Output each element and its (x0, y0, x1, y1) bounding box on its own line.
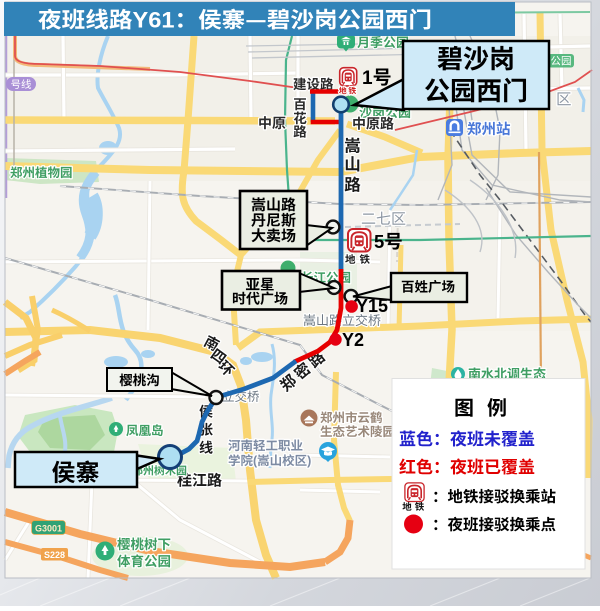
svg-text:时代广场: 时代广场 (232, 289, 288, 309)
svg-text:生态艺术陵园: 生态艺术陵园 (320, 421, 395, 440)
svg-text:嵩山路: 嵩山路 (341, 136, 365, 195)
svg-text:百姓广场: 百姓广场 (401, 276, 455, 296)
svg-text:S228: S228 (44, 548, 65, 561)
svg-text:：夜班接驳换乘点: ：夜班接驳换乘点 (432, 513, 556, 535)
svg-text:侯寨: 侯寨 (52, 453, 100, 488)
svg-text:Y2: Y2 (342, 326, 364, 352)
svg-text:5号: 5号 (374, 228, 403, 254)
svg-text:1号: 1号 (362, 63, 392, 90)
svg-text:凤凰岛: 凤凰岛 (126, 420, 164, 439)
svg-text:地铁: 地铁 (402, 499, 427, 513)
svg-text:体育公园: 体育公园 (117, 550, 171, 570)
svg-text:地铁: 地铁 (339, 86, 358, 97)
svg-text:二七区: 二七区 (361, 208, 406, 229)
svg-text:樱桃沟: 樱桃沟 (119, 369, 160, 389)
svg-text:中原: 中原 (258, 113, 286, 133)
svg-text:区: 区 (556, 88, 572, 110)
svg-text:图例: 图例 (454, 392, 520, 421)
svg-text:红色：夜班已覆盖: 红色：夜班已覆盖 (399, 453, 535, 478)
svg-text:公园西门: 公园西门 (424, 71, 528, 108)
svg-text:号线: 号线 (11, 77, 32, 92)
svg-text:蓝色：夜班未覆盖: 蓝色：夜班未覆盖 (399, 425, 535, 450)
svg-text:郑州植物园: 郑州植物园 (10, 162, 73, 181)
svg-text:学院(嵩山校区): 学院(嵩山校区) (228, 450, 311, 469)
svg-text:中原路: 中原路 (352, 114, 394, 134)
svg-text:夜班线路Y61：侯寨—碧沙岗公园西门: 夜班线路Y61：侯寨—碧沙岗公园西门 (38, 3, 432, 35)
svg-text:大卖场: 大卖场 (251, 225, 296, 246)
svg-text:：地铁接驳换乘站: ：地铁接驳换乘站 (432, 485, 556, 507)
svg-text:郑州站: 郑州站 (467, 118, 511, 139)
svg-text:公园: 公园 (551, 54, 572, 69)
svg-text:百花路: 百花路 (290, 97, 310, 138)
svg-text:地铁: 地铁 (345, 252, 374, 267)
svg-text:G3001: G3001 (35, 522, 62, 535)
